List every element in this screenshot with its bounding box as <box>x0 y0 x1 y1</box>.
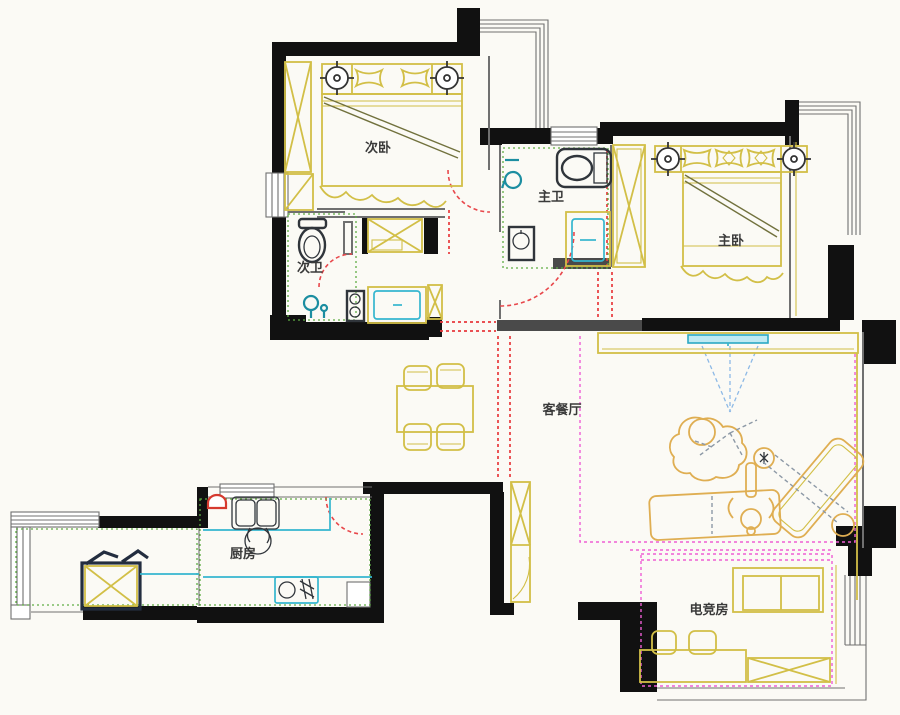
window-kitchen-top <box>220 484 274 498</box>
cabinet-x-icon <box>748 658 830 682</box>
ceiling-lamp-icon <box>651 142 685 176</box>
room-gaming: 电竞房 <box>640 565 836 684</box>
ceiling-lamp-icon <box>430 61 464 95</box>
green-dotted-zones <box>16 148 608 605</box>
range-hood-icon <box>208 495 226 508</box>
chaise-icon <box>649 490 781 541</box>
door-arc-kitchen <box>326 497 363 534</box>
room-label-master-bathroom: 主卫 <box>538 189 564 204</box>
floor-plan-canvas: 次卧 <box>0 0 900 715</box>
room-label-living-dining: 客餐厅 <box>542 402 581 417</box>
door-arcs <box>319 170 574 534</box>
door-arc-bedroom2 <box>448 170 490 212</box>
dining-table-icon <box>397 364 473 450</box>
shower-head-icon <box>502 160 521 188</box>
room-label-gaming: 电竞房 <box>689 602 728 617</box>
recliner-icon <box>763 435 867 542</box>
wardrobe-icon <box>285 62 313 210</box>
gas-stove-icon <box>275 577 318 603</box>
room-living-dining: 客餐厅 <box>397 333 867 602</box>
counter-line <box>203 498 372 577</box>
floor-plan-page: 次卧 <box>0 0 900 715</box>
room-master-bedroom: 主卧 <box>613 142 811 282</box>
tv-viewing-cone <box>702 346 758 412</box>
sofa-icon <box>733 568 823 612</box>
bed-icon <box>655 146 807 282</box>
room-label-master-bedroom: 主卧 <box>718 233 744 248</box>
red-dashed-lines <box>440 150 612 480</box>
exterior-window-top <box>480 20 548 128</box>
room-label-kitchen: 厨房 <box>230 546 256 561</box>
washing-machine-icon <box>566 212 610 266</box>
room-label-secondary-bedroom: 次卧 <box>365 140 391 155</box>
washbasin-icon <box>509 227 534 260</box>
room-secondary-bedroom: 次卧 <box>285 61 464 210</box>
exterior-boundary-bottom-right <box>657 570 866 700</box>
toilet-icon <box>299 219 326 262</box>
laundry-sink-icon <box>368 287 426 323</box>
ceiling-lamp-icon <box>777 142 811 176</box>
hallway-cabinet-icon <box>368 219 422 252</box>
bean-bag-icon <box>670 417 757 480</box>
side-table-icon <box>754 448 774 468</box>
window-master-bath-top <box>551 127 597 145</box>
tall-cabinet-icon <box>511 482 530 602</box>
cabinet-x-icon <box>428 285 442 319</box>
room-master-bathroom: 主卫 <box>502 149 611 266</box>
toilet-icon <box>557 149 611 187</box>
partition-walls <box>31 56 863 612</box>
room-label-secondary-bathroom: 次卫 <box>297 260 323 275</box>
shower-head-icon <box>304 296 327 318</box>
wardrobe-icon <box>613 145 645 267</box>
room-secondary-bathroom: 次卫 <box>297 219 442 323</box>
balcony <box>82 551 199 609</box>
tv-icon <box>688 335 768 346</box>
door-arc-bath2 <box>319 254 352 287</box>
ceiling-lamp-icon <box>320 61 354 95</box>
washer-on-stand-icon <box>82 551 148 609</box>
